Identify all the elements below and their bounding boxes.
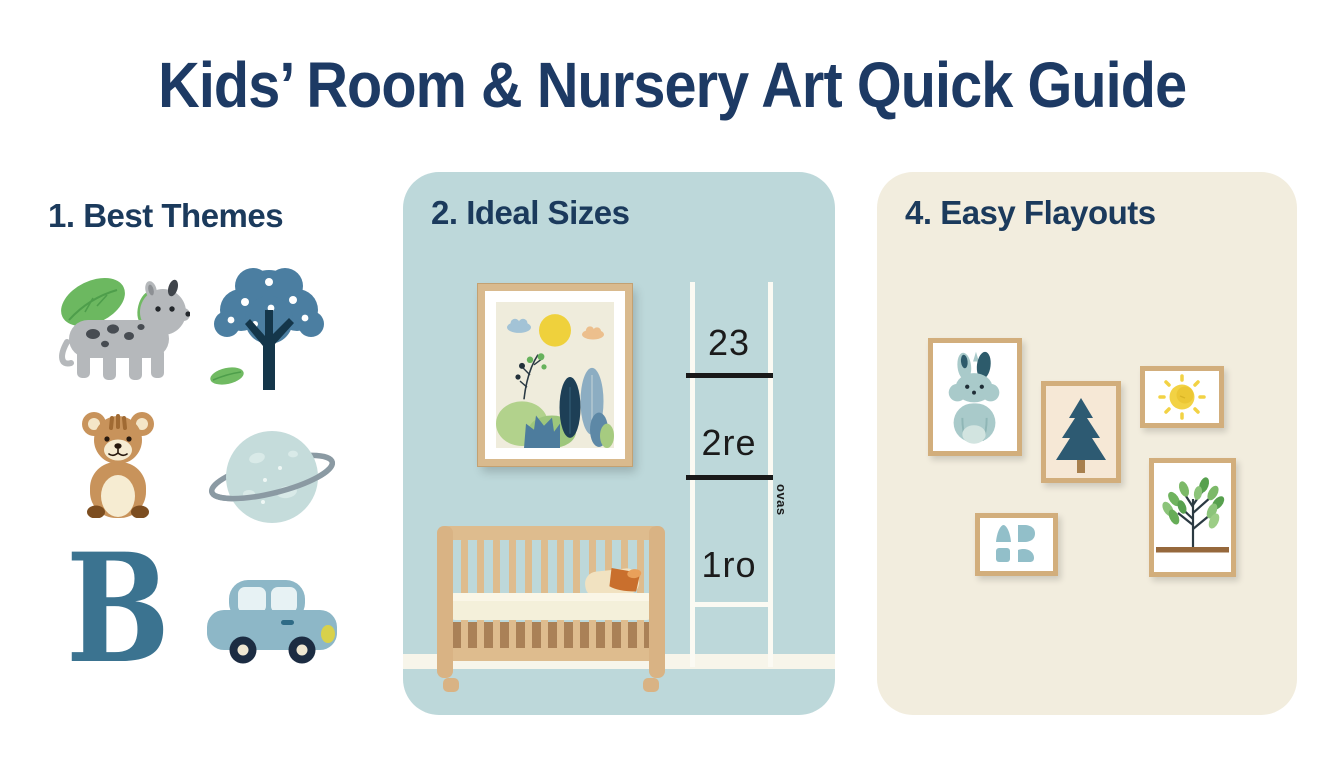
panel-ideal-sizes: 2. Ideal Sizes <box>403 172 835 715</box>
themes-heading: 1. Best Themes <box>48 197 283 235</box>
ruler-label-1: 23 <box>686 322 772 364</box>
pine-tree-art <box>1046 386 1116 478</box>
leaf-branch-art <box>1154 463 1231 572</box>
ruler-label-2: 2re <box>686 422 772 464</box>
infographic: Kids’ Room & Nursery Art Quick Guide 1. … <box>0 0 1344 768</box>
bunny-art <box>939 349 1011 445</box>
abstract-shapes-art <box>980 518 1053 571</box>
wall-art-print <box>496 302 614 448</box>
sizes-heading: 2. Ideal Sizes <box>431 194 629 232</box>
layouts-heading: 4. Easy Flayouts <box>905 194 1156 232</box>
ruler-tick-3 <box>693 602 771 607</box>
pine-tree-frame <box>1041 381 1121 483</box>
spotted-animal-icon <box>55 268 190 390</box>
car-icon <box>205 572 339 668</box>
teddy-bear-icon <box>76 410 160 518</box>
panel-easy-layouts: 4. Easy Flayouts <box>877 172 1297 715</box>
ruler-side-label: ovas <box>774 484 789 516</box>
ruler-tick-2 <box>686 475 773 480</box>
framed-wall-art <box>478 284 632 466</box>
crib-illustration <box>437 526 665 692</box>
letter-b-icon: B <box>66 550 148 676</box>
leaf-branch-frame <box>1149 458 1236 577</box>
ringed-planet-icon <box>205 420 339 538</box>
sun-art <box>1145 371 1219 423</box>
abstract-shapes-frame <box>975 513 1058 576</box>
ruler-tick-1 <box>686 373 773 378</box>
sun-frame <box>1140 366 1224 428</box>
bunny-frame <box>928 338 1022 456</box>
page-title: Kids’ Room & Nursery Art Quick Guide <box>0 48 1344 122</box>
ruler-label-3: 1ro <box>686 544 772 586</box>
dotted-tree-icon <box>207 262 331 390</box>
